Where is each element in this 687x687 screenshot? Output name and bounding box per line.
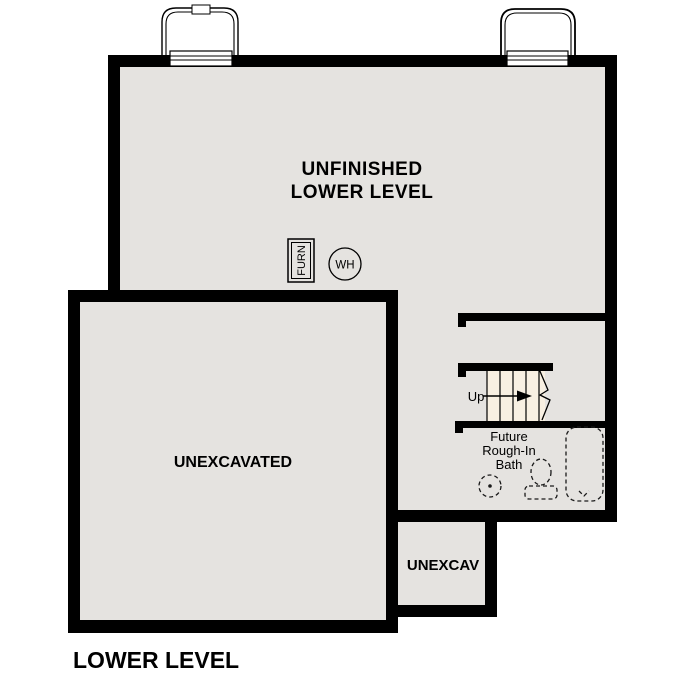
wall-unexcavated-bottom bbox=[68, 620, 398, 633]
wall-left-upper bbox=[108, 55, 120, 302]
window-well-right bbox=[501, 9, 575, 66]
plan-title: LOWER LEVEL bbox=[73, 647, 239, 673]
floor-plan-page: Up FURN WH Future Rough-In Bath UNFINISH… bbox=[0, 0, 687, 687]
furnace-label: FURN bbox=[296, 245, 308, 276]
wall-unexcavated-right bbox=[386, 290, 398, 633]
window-well-left bbox=[162, 5, 238, 66]
window-well-outer-line bbox=[501, 9, 575, 56]
wall-stair-bottom-cap bbox=[455, 421, 463, 433]
wall-unexcavated-top bbox=[68, 290, 398, 302]
window-well-step-icon bbox=[192, 5, 210, 14]
floor-areas bbox=[68, 55, 617, 633]
bath-label-line3: Bath bbox=[496, 457, 523, 472]
bath-label-line1: Future bbox=[490, 429, 528, 444]
window-well-inner-line bbox=[166, 12, 234, 56]
wall-unexcav-bottom bbox=[386, 605, 497, 617]
wall-unexcav-right bbox=[485, 510, 497, 617]
window-well-inner-line bbox=[505, 13, 571, 56]
water-heater-label: WH bbox=[335, 260, 354, 272]
wall-stair-top-cap bbox=[458, 363, 466, 377]
wall-right bbox=[605, 55, 617, 522]
room-label-unfinished-line2: LOWER LEVEL bbox=[291, 182, 434, 203]
room-label-unfinished-line1: UNFINISHED bbox=[301, 159, 422, 180]
wall-stair-upper-stub bbox=[458, 313, 605, 321]
window-icon bbox=[507, 51, 568, 66]
room-label-unexcav: UNEXCAV bbox=[407, 557, 479, 574]
furnace-icon: FURN bbox=[288, 239, 314, 282]
window-well-outer-line bbox=[162, 8, 238, 56]
wall-stair-upper-stub-cap bbox=[458, 313, 466, 327]
window-icon bbox=[170, 51, 232, 66]
room-label-unexcavated: UNEXCAVATED bbox=[174, 454, 292, 471]
bath-label-line2: Rough-In bbox=[482, 443, 535, 458]
floor-plan: Up FURN WH Future Rough-In Bath UNFINISH… bbox=[0, 0, 687, 687]
stairs-up-label: Up bbox=[468, 389, 485, 404]
wall-unexcavated-left bbox=[68, 290, 80, 633]
wall-bottom-right bbox=[386, 510, 617, 522]
